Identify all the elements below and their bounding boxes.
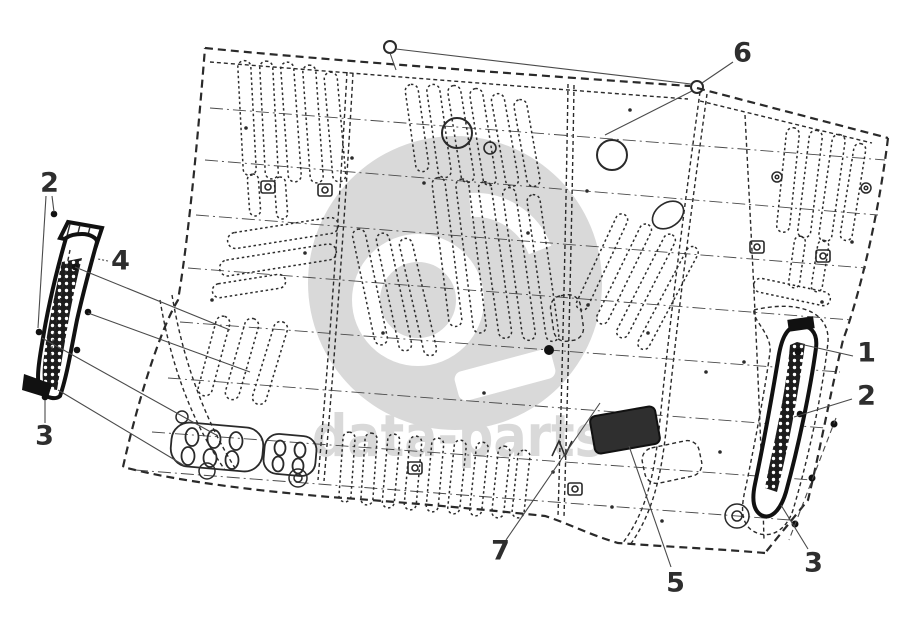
left-sill-part	[22, 211, 102, 401]
floor-panel-drawing: data-parts	[0, 0, 916, 621]
parts-diagram-page: data-parts	[0, 0, 916, 621]
